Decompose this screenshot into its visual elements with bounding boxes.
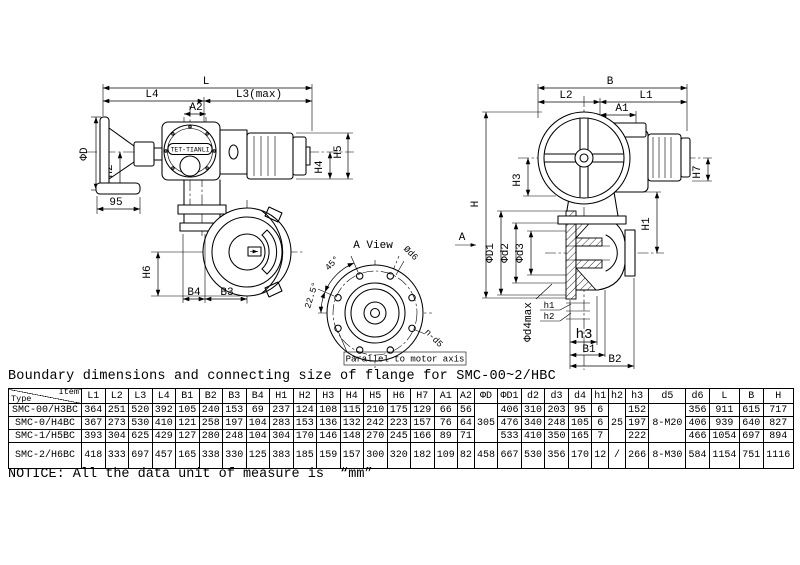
table-header-row: Item Type L1L2L3L4B1B2B3B4H1H2H3H4H5H6H7…	[9, 389, 794, 404]
dimension-table-wrap: Item Type L1L2L3L4B1B2B3B4H1H2H3H4H5H6H7…	[8, 388, 794, 469]
row-type-label: SMC-1/H5BC	[9, 430, 82, 443]
dim-label-od6: Ød6	[401, 244, 420, 263]
table-cell: 153	[293, 417, 317, 430]
table-cell: 333	[105, 443, 129, 469]
handwheel-front	[538, 112, 630, 204]
dim-label-H6: H6	[142, 265, 154, 278]
dim-label-L2: L2	[559, 90, 572, 102]
column-header: H5	[364, 389, 388, 404]
table-cell: 304	[105, 430, 129, 443]
table-cell: 939	[709, 417, 739, 430]
drawing-sheet: L L4 L3(max) A2 ΦD H2 95 H4 H5	[0, 0, 800, 565]
table-cell: 136	[317, 417, 341, 430]
table-cell: /	[609, 443, 626, 469]
table-title: Boundary dimensions and connecting size …	[8, 369, 556, 384]
column-header: L4	[152, 389, 176, 404]
dim-label-h1: h1	[544, 301, 555, 311]
table-cell: 667	[498, 443, 522, 469]
table-cell: 248	[223, 430, 247, 443]
column-header: h1	[592, 389, 609, 404]
table-cell: 615	[740, 404, 764, 417]
table-cell: 392	[152, 404, 176, 417]
table-cell: 240	[199, 404, 223, 417]
column-header: B4	[246, 389, 270, 404]
table-cell: 146	[317, 430, 341, 443]
table-cell: 121	[176, 417, 200, 430]
column-header: B3	[223, 389, 247, 404]
table-row: SMC-2/H6BC418333697457165338330125383185…	[9, 443, 794, 469]
dim-label-phiD: ΦD	[79, 147, 91, 161]
dim-label-L3: L3(max)	[236, 89, 282, 101]
dim-label-L4: L4	[145, 89, 159, 101]
table-cell: 248	[545, 417, 569, 430]
table-body: SMC-00/H3BC36425152039210524015369237124…	[9, 404, 794, 469]
dim-label-H5: H5	[333, 145, 345, 158]
table-cell: 584	[686, 443, 710, 469]
dim-label-h3: h3	[576, 327, 593, 343]
table-cell: 310	[521, 404, 545, 417]
table-cell: 76	[434, 417, 458, 430]
table-cell: 827	[763, 417, 793, 430]
table-cell: 356	[686, 404, 710, 417]
table-cell: 197	[625, 417, 649, 430]
table-cell: 894	[763, 430, 793, 443]
dim-label-A2: A2	[189, 102, 202, 114]
column-header: A1	[434, 389, 458, 404]
table-cell: 717	[763, 404, 793, 417]
dim-label-nd5: n-d5	[422, 327, 444, 349]
table-cell: 203	[545, 404, 569, 417]
table-cell: 105	[176, 404, 200, 417]
table-cell: 304	[270, 430, 294, 443]
column-header: h3	[625, 389, 649, 404]
valve-section	[558, 211, 635, 299]
table-cell: 185	[293, 443, 317, 469]
handwheel-side	[96, 117, 164, 194]
dim-label-H4: H4	[314, 160, 326, 174]
table-cell: 273	[105, 417, 129, 430]
table-cell: 104	[246, 417, 270, 430]
table-cell: 1116	[763, 443, 793, 469]
table-cell: 533	[498, 430, 522, 443]
table-cell: 640	[740, 417, 764, 430]
column-header: H4	[340, 389, 364, 404]
table-cell: 258	[199, 417, 223, 430]
table-cell: 383	[270, 443, 294, 469]
table-cell: 12	[592, 443, 609, 469]
table-cell: 165	[568, 430, 592, 443]
table-cell: 429	[152, 430, 176, 443]
column-header: L2	[105, 389, 129, 404]
valve-side	[178, 180, 291, 297]
table-cell: 418	[82, 443, 106, 469]
row-type-label: SMC-2/H6BC	[9, 443, 82, 469]
dim-label-phid4max: Φd4max	[523, 302, 535, 342]
table-cell: 338	[199, 443, 223, 469]
column-header: B2	[199, 389, 223, 404]
table-cell: 127	[176, 430, 200, 443]
table-cell: 157	[340, 443, 364, 469]
table-cell: 170	[568, 443, 592, 469]
dim-label-L1: L1	[639, 90, 653, 102]
table-cell: 530	[129, 417, 153, 430]
table-cell: 283	[270, 417, 294, 430]
table-cell: 66	[434, 404, 458, 417]
table-cell: 69	[246, 404, 270, 417]
column-header: d5	[649, 389, 686, 404]
column-header: H2	[293, 389, 317, 404]
corner-item-label: Item	[59, 388, 79, 397]
dim-label-H1: H1	[641, 217, 653, 231]
table-cell: 8-M30	[649, 443, 686, 469]
table-cell: 330	[223, 443, 247, 469]
table-cell: 223	[387, 417, 411, 430]
dim-label-22.5deg: 22.5°	[303, 281, 321, 310]
a-view-title: A View	[353, 240, 393, 252]
dim-label-B4: B4	[187, 287, 201, 299]
dim-label-H7: H7	[692, 165, 704, 178]
table-cell: 7	[592, 430, 609, 443]
table-cell: 124	[293, 404, 317, 417]
table-cell: 364	[82, 404, 106, 417]
table-cell: 95	[568, 404, 592, 417]
table-cell: 82	[458, 443, 475, 469]
motor-side	[220, 130, 310, 179]
table-cell: 165	[176, 443, 200, 469]
column-header: d6	[686, 389, 710, 404]
table-cell: 280	[199, 430, 223, 443]
row-type-label: SMC-00/H3BC	[9, 404, 82, 417]
dim-label-L: L	[203, 76, 210, 88]
table-cell: 129	[411, 404, 435, 417]
table-cell: 170	[293, 430, 317, 443]
dim-label-phid3: Φd3	[515, 243, 527, 263]
table-cell: 406	[498, 404, 522, 417]
dim-label-B: B	[607, 76, 614, 88]
table-cell: 175	[387, 404, 411, 417]
column-header: L3	[129, 389, 153, 404]
table-cell: 108	[317, 404, 341, 417]
table-cell: 242	[364, 417, 388, 430]
table-cell: 697	[740, 430, 764, 443]
table-cell: 270	[364, 430, 388, 443]
table-cell: 104	[246, 430, 270, 443]
table-cell: 71	[458, 430, 475, 443]
table-cell: 89	[434, 430, 458, 443]
table-cell: 115	[340, 404, 364, 417]
table-cell: 157	[411, 417, 435, 430]
table-cell: 125	[246, 443, 270, 469]
table-cell: 109	[434, 443, 458, 469]
technical-drawing: L L4 L3(max) A2 ΦD H2 95 H4 H5	[0, 0, 800, 372]
table-cell: 458	[474, 443, 498, 469]
column-header: d3	[545, 389, 569, 404]
table-cell: 222	[625, 430, 649, 443]
table-cell: 166	[411, 430, 435, 443]
view-direction-label-A: A	[459, 232, 466, 244]
table-cell: 466	[686, 430, 710, 443]
table-cell: 530	[521, 443, 545, 469]
column-header: L	[709, 389, 739, 404]
dim-label-phid2: Φd2	[500, 243, 512, 263]
table-cell: 340	[521, 417, 545, 430]
table-cell: 406	[686, 417, 710, 430]
table-row: SMC-00/H3BC36425152039210524015369237124…	[9, 404, 794, 417]
column-header: B1	[176, 389, 200, 404]
table-cell: 410	[521, 430, 545, 443]
table-cell: 911	[709, 404, 739, 417]
table-cell: 251	[105, 404, 129, 417]
table-cell: 457	[152, 443, 176, 469]
corner-type-label: Type	[11, 395, 31, 404]
left-view: L L4 L3(max) A2 ΦD H2 95 H4 H5	[79, 76, 354, 306]
table-cell: 148	[340, 430, 364, 443]
table-cell: 210	[364, 404, 388, 417]
dimension-table: Item Type L1L2L3L4B1B2B3B4H1H2H3H4H5H6H7…	[8, 388, 794, 469]
table-cell: 237	[270, 404, 294, 417]
notice-text: NOTICE: All the data unit of measure is …	[8, 467, 373, 482]
dim-label-phiD1: ΦD1	[485, 243, 497, 263]
dim-label-H3: H3	[512, 173, 524, 186]
column-header: h2	[609, 389, 626, 404]
table-cell: 305	[474, 404, 498, 443]
table-cell: 6	[592, 404, 609, 417]
table-cell: 625	[129, 430, 153, 443]
table-cell: 367	[82, 417, 106, 430]
table-cell: 350	[545, 430, 569, 443]
brand-logo: TET-TIANLI	[170, 147, 209, 154]
column-header: ΦD	[474, 389, 498, 404]
dim-label-B2: B2	[608, 354, 621, 366]
table-cell: 56	[458, 404, 475, 417]
parallel-note: Parallel to motor axis	[346, 355, 465, 365]
dim-label-B1: B1	[582, 344, 596, 356]
column-header: H	[763, 389, 793, 404]
table-cell: 320	[387, 443, 411, 469]
table-cell: 159	[317, 443, 341, 469]
table-cell: 393	[82, 430, 106, 443]
a-view: A View 45° 22.5° Ød6 n-d5 Parallel to mo…	[303, 240, 466, 368]
column-header: d2	[521, 389, 545, 404]
table-cell: 476	[498, 417, 522, 430]
dim-label-B3: B3	[220, 287, 233, 299]
table-cell: 266	[625, 443, 649, 469]
table-cell: 1054	[709, 430, 739, 443]
table-cell: 182	[411, 443, 435, 469]
gearbox: TET-TIANLI	[162, 122, 220, 180]
table-cell: 105	[568, 417, 592, 430]
dim-label-H: H	[470, 201, 482, 208]
column-header: A2	[458, 389, 475, 404]
column-header: B	[740, 389, 764, 404]
column-header: H7	[411, 389, 435, 404]
right-view: B L2 L1 A1 H H3 H7 H1 ΦD1 Φd2 Φd3 Φd4max	[455, 76, 712, 370]
column-header: L1	[82, 389, 106, 404]
table-cell: 6	[592, 417, 609, 430]
column-header: H3	[317, 389, 341, 404]
table-cell: 8-M20	[649, 404, 686, 443]
row-type-label: SMC-0/H4BC	[9, 417, 82, 430]
column-header: d4	[568, 389, 592, 404]
table-cell: 64	[458, 417, 475, 430]
table-cell: 697	[129, 443, 153, 469]
table-cell: 410	[152, 417, 176, 430]
table-cell: 153	[223, 404, 247, 417]
table-cell: 300	[364, 443, 388, 469]
table-cell: 1154	[709, 443, 739, 469]
table-cell: 356	[545, 443, 569, 469]
column-header: H1	[270, 389, 294, 404]
table-cell: 245	[387, 430, 411, 443]
table-cell: 25	[609, 404, 626, 443]
table-cell: 197	[223, 417, 247, 430]
dim-label-A1: A1	[615, 103, 629, 115]
dim-label-h2: h2	[544, 312, 555, 322]
table-cell: 520	[129, 404, 153, 417]
dim-label-95: 95	[109, 197, 122, 209]
column-header: ΦD1	[498, 389, 522, 404]
column-header: H6	[387, 389, 411, 404]
table-cell: 152	[625, 404, 649, 417]
dim-label-45deg: 45°	[323, 254, 341, 273]
table-cell: 132	[340, 417, 364, 430]
corner-cell: Item Type	[9, 389, 82, 404]
table-cell: 751	[740, 443, 764, 469]
